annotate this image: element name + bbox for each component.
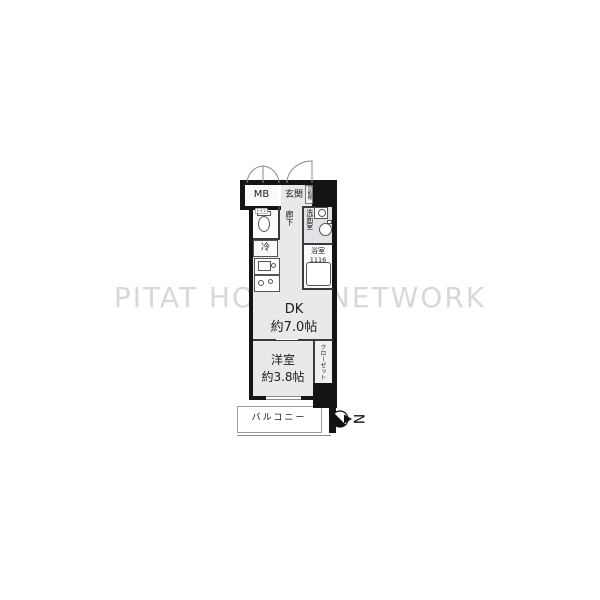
washer-label: 洗濯機 xyxy=(315,204,326,209)
western-room-size: 約3.8帖 xyxy=(253,369,313,386)
dk-size: 約7.0帖 xyxy=(255,319,333,337)
movable-shelf-label: 可動棚 xyxy=(306,186,312,200)
dk-label: DK 約7.0帖 xyxy=(255,301,333,337)
mb-door-arc-right xyxy=(263,166,279,183)
mb-label: MB xyxy=(245,189,278,202)
compass-north-letter: N xyxy=(350,414,366,424)
toilet-label: トイレ xyxy=(255,208,268,213)
entrance-door-arc xyxy=(287,161,312,183)
genkan-label: 玄関 xyxy=(280,190,308,201)
closet-label: クローゼット xyxy=(318,344,326,380)
bathroom-label: 浴室 1116 xyxy=(304,247,332,264)
western-room-name: 洋室 xyxy=(253,352,313,369)
western-room-label: 洋室 約3.8帖 xyxy=(253,352,313,386)
fridge-label: 冷 xyxy=(253,243,278,254)
door-arcs-and-compass: N xyxy=(0,0,600,600)
washroom-label: 洗面室 xyxy=(305,209,314,230)
balcony-label: バルコニー xyxy=(238,413,320,424)
dk-name: DK xyxy=(255,301,333,319)
bathroom-size: 1116 xyxy=(304,256,332,264)
floorplan-image: PITAT HOUSE NETWORK xyxy=(0,0,600,600)
bathroom-name: 浴室 xyxy=(304,247,332,256)
mb-door-arc-left xyxy=(247,166,263,183)
corridor-label: 廊下 xyxy=(284,210,294,226)
